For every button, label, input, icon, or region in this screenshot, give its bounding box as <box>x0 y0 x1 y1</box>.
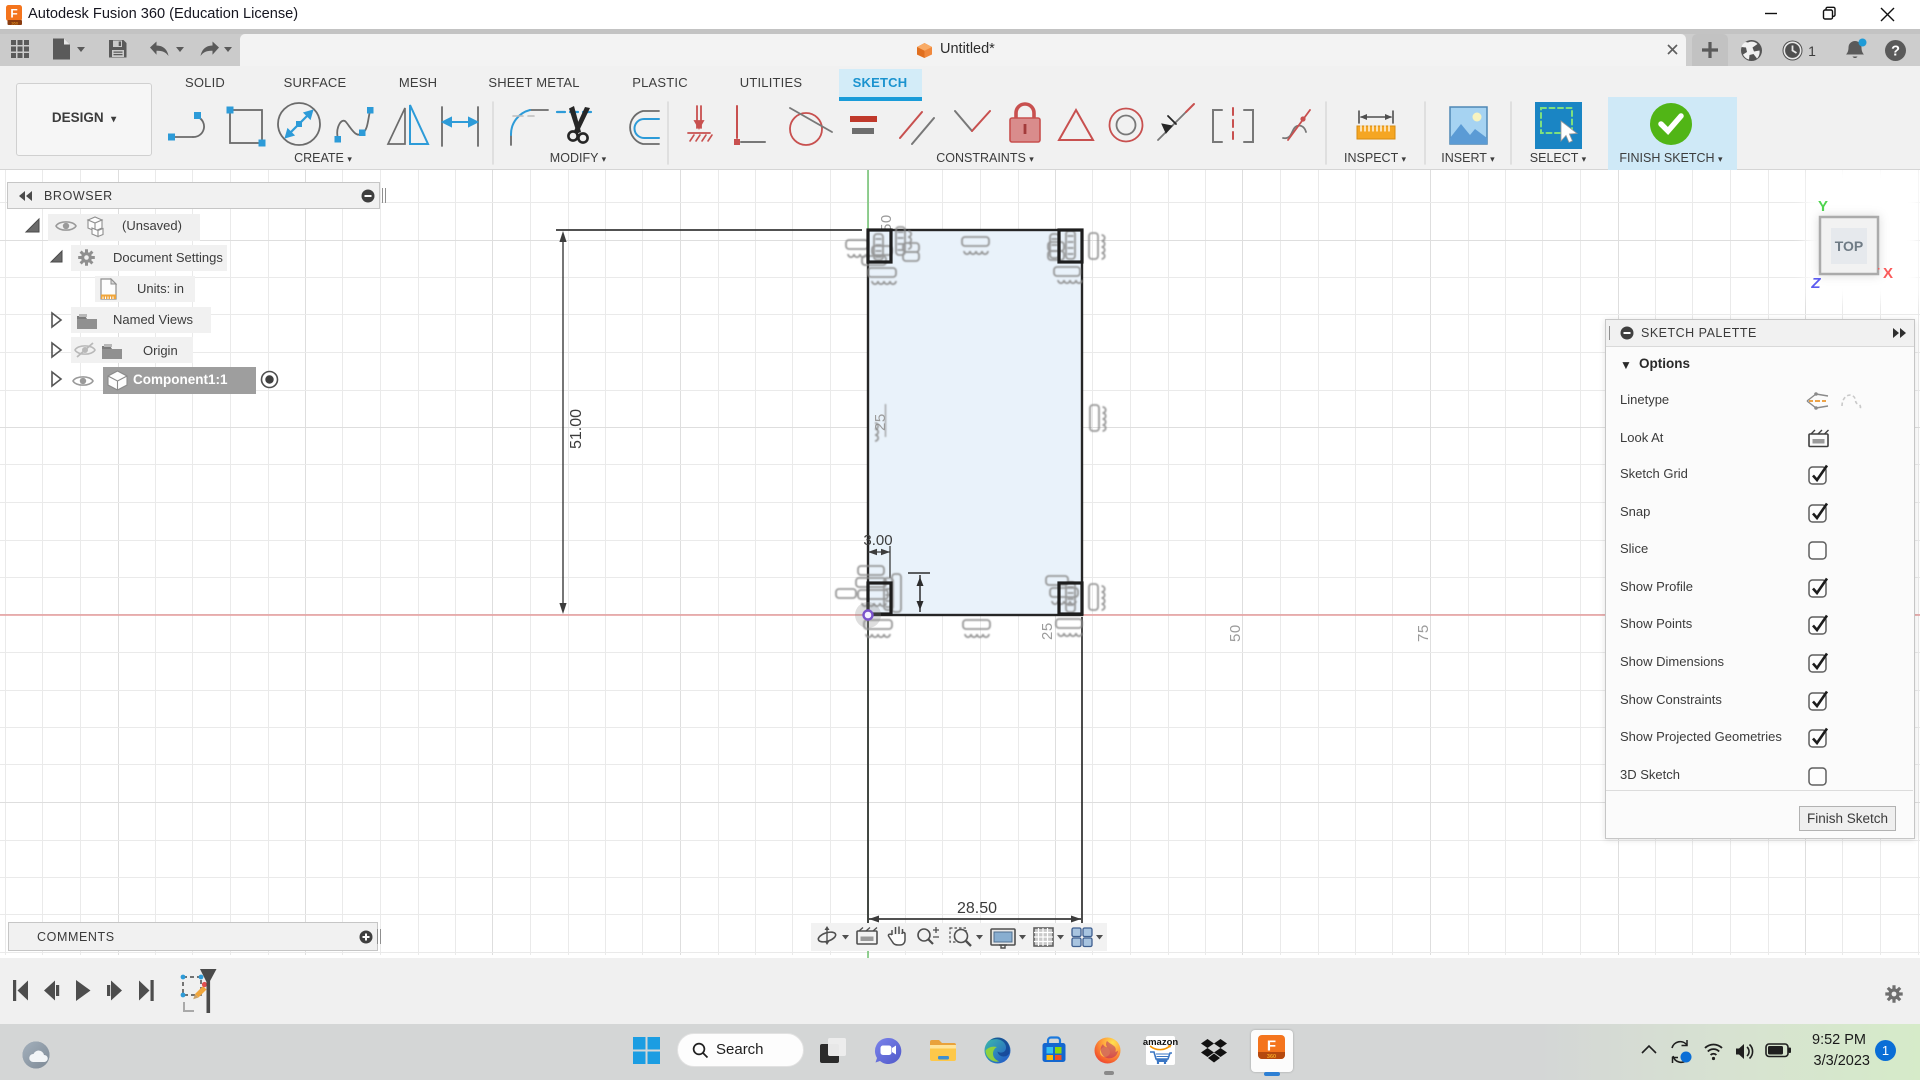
svg-text:F: F <box>10 7 17 21</box>
svg-text:51.00: 51.00 <box>568 409 585 449</box>
svg-text:360: 360 <box>1267 1054 1276 1060</box>
svg-text:28.50: 28.50 <box>957 900 997 917</box>
svg-text:75: 75 <box>1415 624 1432 642</box>
svg-text:TOP: TOP <box>1835 238 1864 254</box>
svg-text:Y: Y <box>1818 198 1828 215</box>
svg-text:25: 25 <box>872 413 889 431</box>
svg-text:50: 50 <box>1227 624 1244 642</box>
svg-text:X: X <box>1883 265 1893 282</box>
svg-text:?: ? <box>1891 44 1900 60</box>
svg-text:1: 1 <box>1808 43 1816 59</box>
svg-text:3.00: 3.00 <box>863 532 892 549</box>
svg-text:25: 25 <box>1039 622 1056 640</box>
svg-text:·: · <box>1877 264 1880 275</box>
svg-text:F: F <box>1267 1038 1276 1055</box>
svg-text:360: 360 <box>11 21 18 26</box>
svg-text:Z: Z <box>1810 275 1821 292</box>
